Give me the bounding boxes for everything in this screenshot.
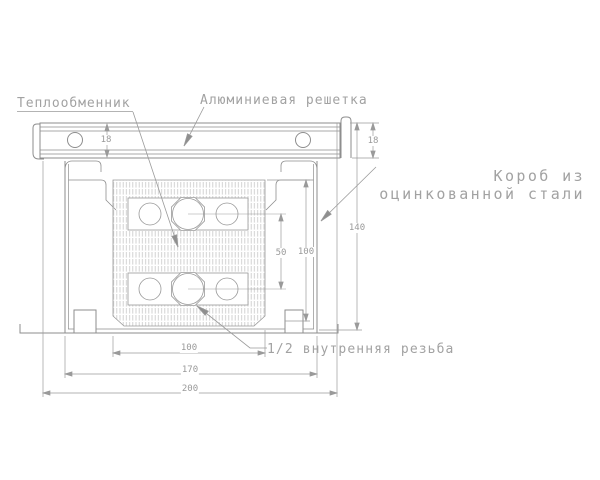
label-internal-thread: 1/2 внутренняя резьба [267, 342, 454, 357]
box-arrow [321, 211, 331, 222]
label-heat-exchanger: Теплообменник [17, 96, 130, 111]
technical-drawing: Теплообменник Алюминиевая решетка Короб … [0, 0, 600, 480]
grille-right-lip [341, 117, 351, 158]
label-aluminum-grille: Алюминиевая решетка [200, 93, 368, 108]
box-top-flange-right [281, 161, 317, 172]
box-top-flange-left [65, 161, 101, 172]
dim-grille-height-right: 18 [367, 136, 380, 146]
dim-box-height: 140 [348, 223, 366, 233]
box-foot-left [74, 310, 96, 333]
grille-body [40, 123, 340, 158]
grille-screw-hole-right [296, 133, 311, 148]
dim-box-width: 170 [181, 365, 199, 375]
box-funnel-left [69, 180, 117, 210]
box-foot-right [285, 310, 303, 333]
heat-exchanger-core [113, 180, 286, 326]
label-steel-box-line2: оцинкованной стали [360, 186, 585, 203]
dim-core-height: 100 [297, 247, 315, 257]
dim-overall-width: 200 [181, 384, 199, 394]
label-steel-box-line1: Короб из [360, 168, 585, 185]
grille-bar [33, 117, 351, 159]
dim-grille-height-left: 18 [100, 135, 113, 145]
drawing-linework [0, 0, 600, 480]
dim-core-width: 100 [180, 343, 198, 353]
grille-screw-hole-left [68, 133, 83, 148]
grille-arrow [184, 134, 192, 146]
dim-pipe-spacing: 50 [275, 248, 288, 258]
